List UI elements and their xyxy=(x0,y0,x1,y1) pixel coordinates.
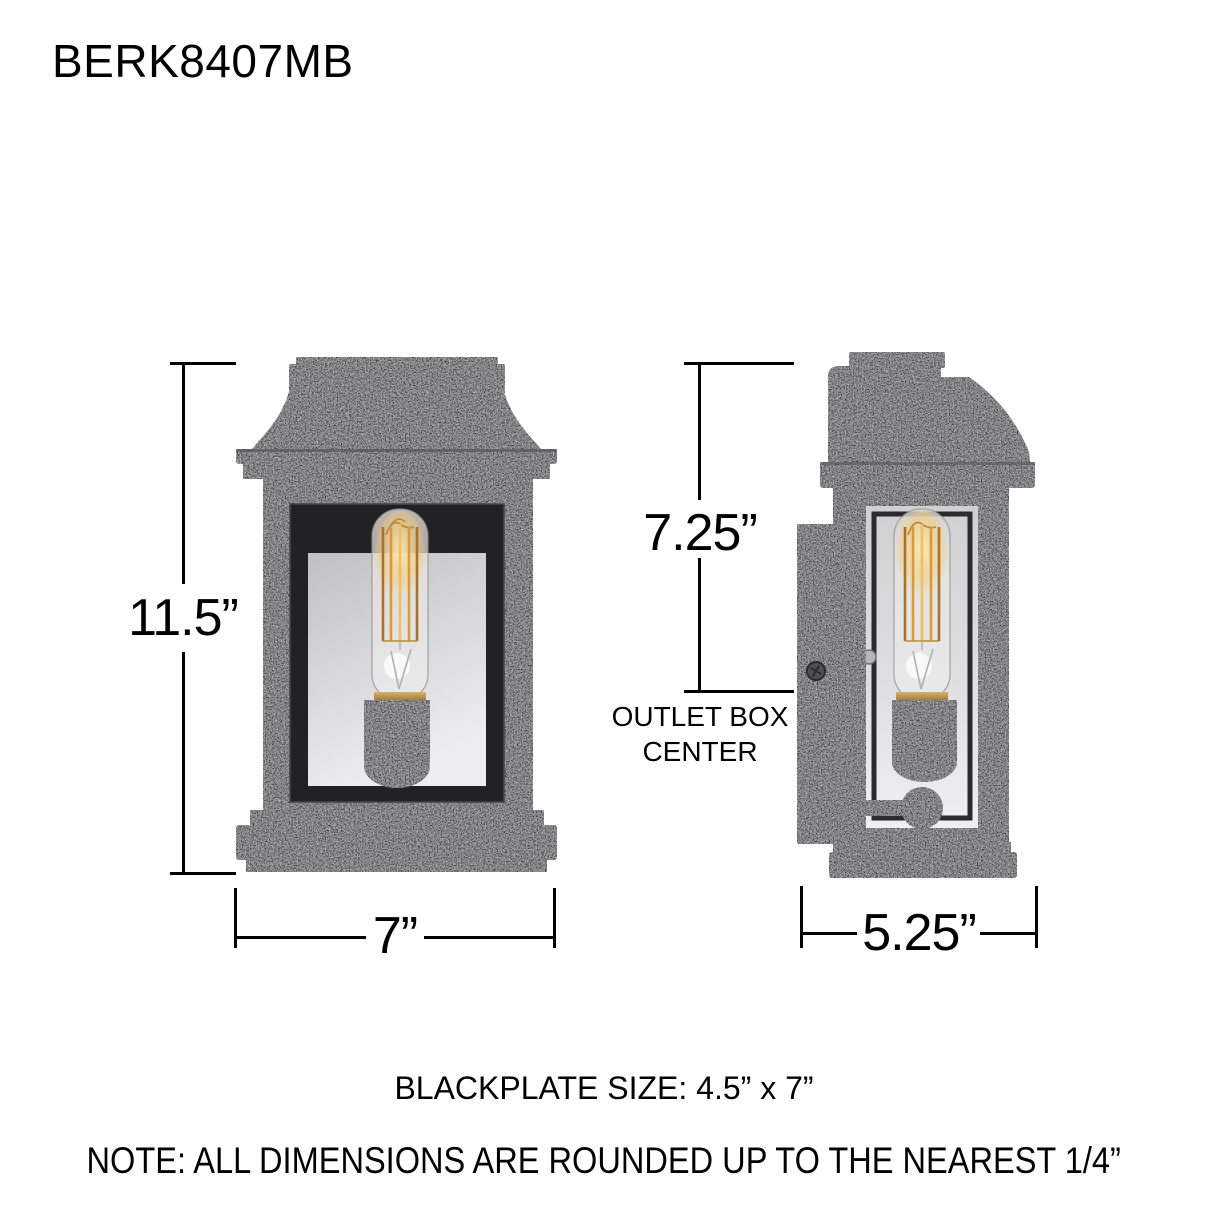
width-dim-right-tick xyxy=(553,888,556,948)
front-view-illustration xyxy=(236,357,557,872)
height-dim-top-tick xyxy=(170,362,236,365)
outlet-dim-line-upper xyxy=(698,362,701,500)
front-bulb xyxy=(372,509,428,703)
front-roof-upper-step xyxy=(289,364,505,394)
outlet-height-dimension-label: 7.25” xyxy=(608,503,792,563)
width-dim-left-tick xyxy=(234,888,237,948)
front-base-foot xyxy=(246,858,547,872)
width-dimension-label: 7” xyxy=(340,906,450,966)
outlet-box-label-line1: OUTLET BOX xyxy=(585,699,815,734)
side-cornice xyxy=(820,462,1035,488)
side-cornice-highlight xyxy=(820,462,1035,465)
side-base-plate xyxy=(829,852,1017,878)
height-dimension-label: 11.5” xyxy=(93,588,273,648)
rounding-note-text: NOTE: ALL DIMENSIONS ARE ROUNDED UP TO T… xyxy=(87,1140,1121,1182)
front-socket xyxy=(364,700,430,788)
depth-dim-left-tick xyxy=(800,886,803,948)
height-dim-line-upper xyxy=(182,362,185,584)
front-lip-highlight xyxy=(236,449,557,452)
backplate-size-note: BLACKPLATE SIZE: 4.5” x 7” xyxy=(0,1070,1208,1107)
depth-dim-right-tick xyxy=(1035,886,1038,948)
side-roof-top-block xyxy=(849,352,945,368)
outlet-dim-line-lower xyxy=(698,558,701,693)
side-view-illustration xyxy=(797,352,1035,878)
front-base-plate xyxy=(236,825,557,860)
depth-dimension-label: 5.25” xyxy=(844,903,994,963)
height-dim-bottom-tick xyxy=(170,872,236,875)
side-bulb xyxy=(894,509,950,703)
side-wall-plate xyxy=(797,524,836,844)
side-roof xyxy=(828,366,1031,469)
height-dim-line-lower xyxy=(182,652,185,875)
outlet-box-center-label: OUTLET BOX CENTER xyxy=(585,699,815,769)
rounding-note: NOTE: ALL DIMENSIONS ARE ROUNDED UP TO T… xyxy=(0,1140,1208,1182)
diagram-canvas: BERK8407MB xyxy=(0,0,1208,1208)
side-socket xyxy=(892,700,957,782)
side-arm-ball xyxy=(901,787,943,829)
outlet-box-label-line2: CENTER xyxy=(585,734,815,769)
side-mounting-screw xyxy=(807,662,825,680)
front-roof-flare xyxy=(247,391,546,455)
